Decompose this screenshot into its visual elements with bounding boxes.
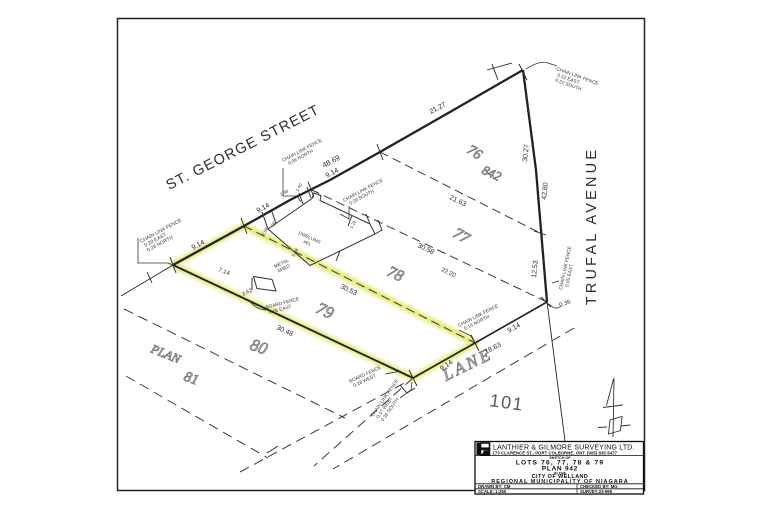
svg-text:TRUFAL AVENUE: TRUFAL AVENUE [584,147,600,305]
svg-text:173 CLARENCE ST., PORT COLBO: 173 CLARENCE ST., PORT COLBORNE, ONT. (9… [493,450,618,455]
svg-text:SCALE: 1:250: SCALE: 1:250 [478,489,507,494]
svg-text:SURVEY 23-999: SURVEY 23-999 [580,489,613,494]
